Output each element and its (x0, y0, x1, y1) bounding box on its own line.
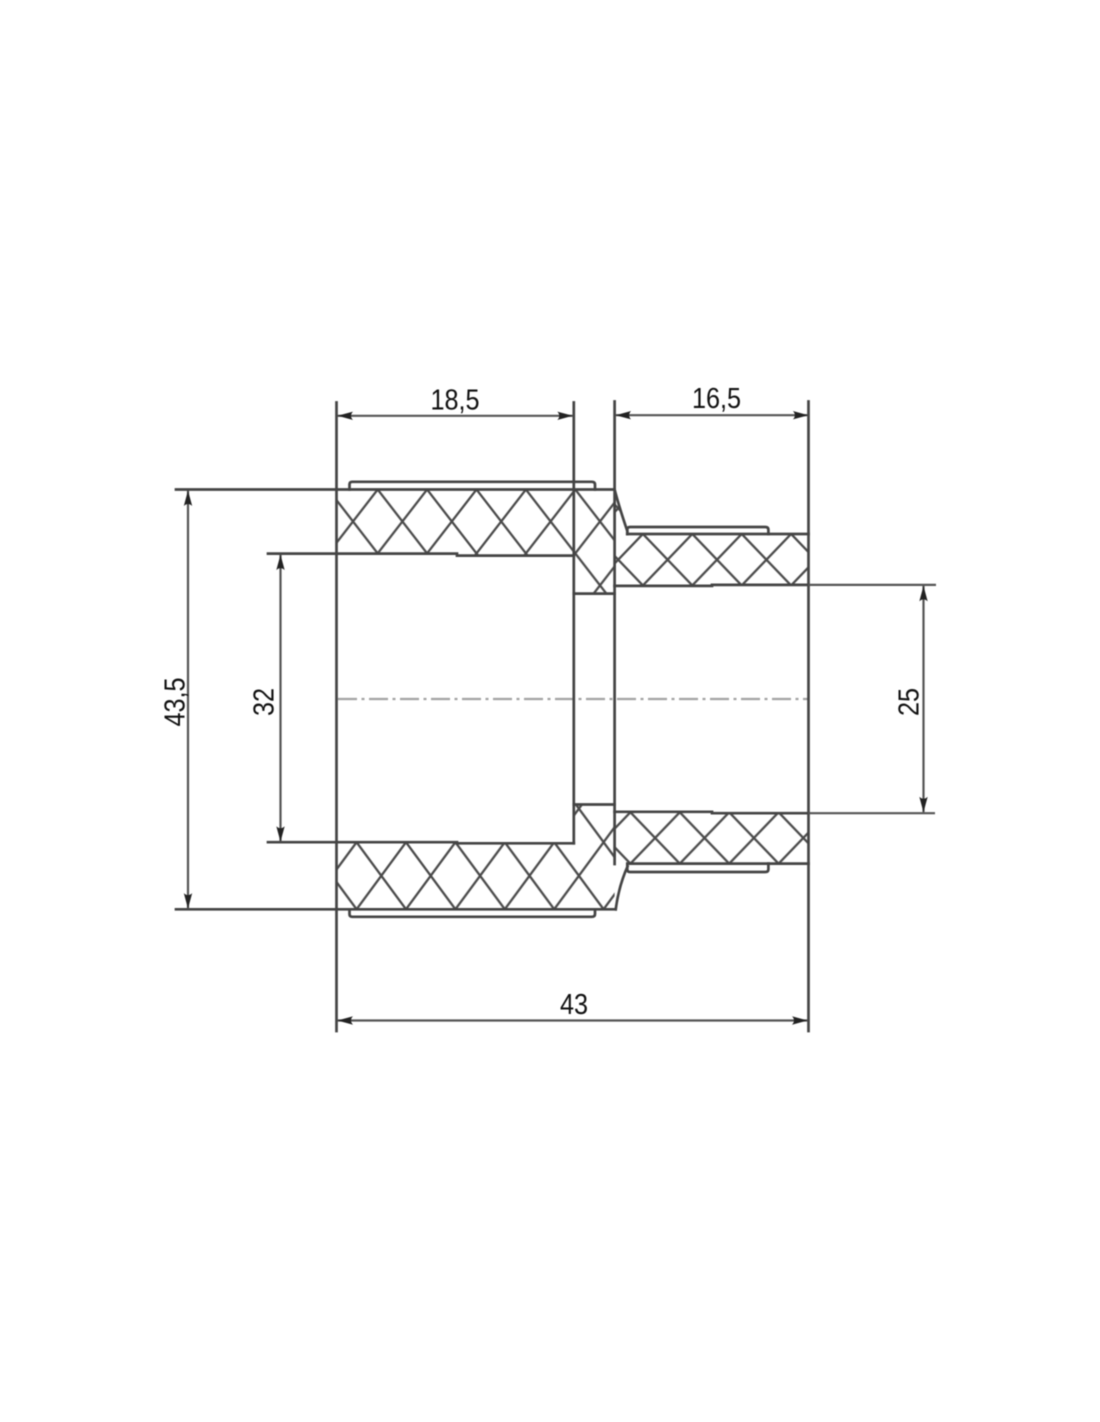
svg-text:18,5: 18,5 (430, 383, 479, 416)
svg-text:43: 43 (560, 987, 588, 1020)
svg-text:16,5: 16,5 (692, 381, 741, 414)
svg-text:25: 25 (892, 688, 925, 716)
svg-text:32: 32 (247, 688, 280, 716)
svg-text:43,5: 43,5 (158, 677, 191, 726)
